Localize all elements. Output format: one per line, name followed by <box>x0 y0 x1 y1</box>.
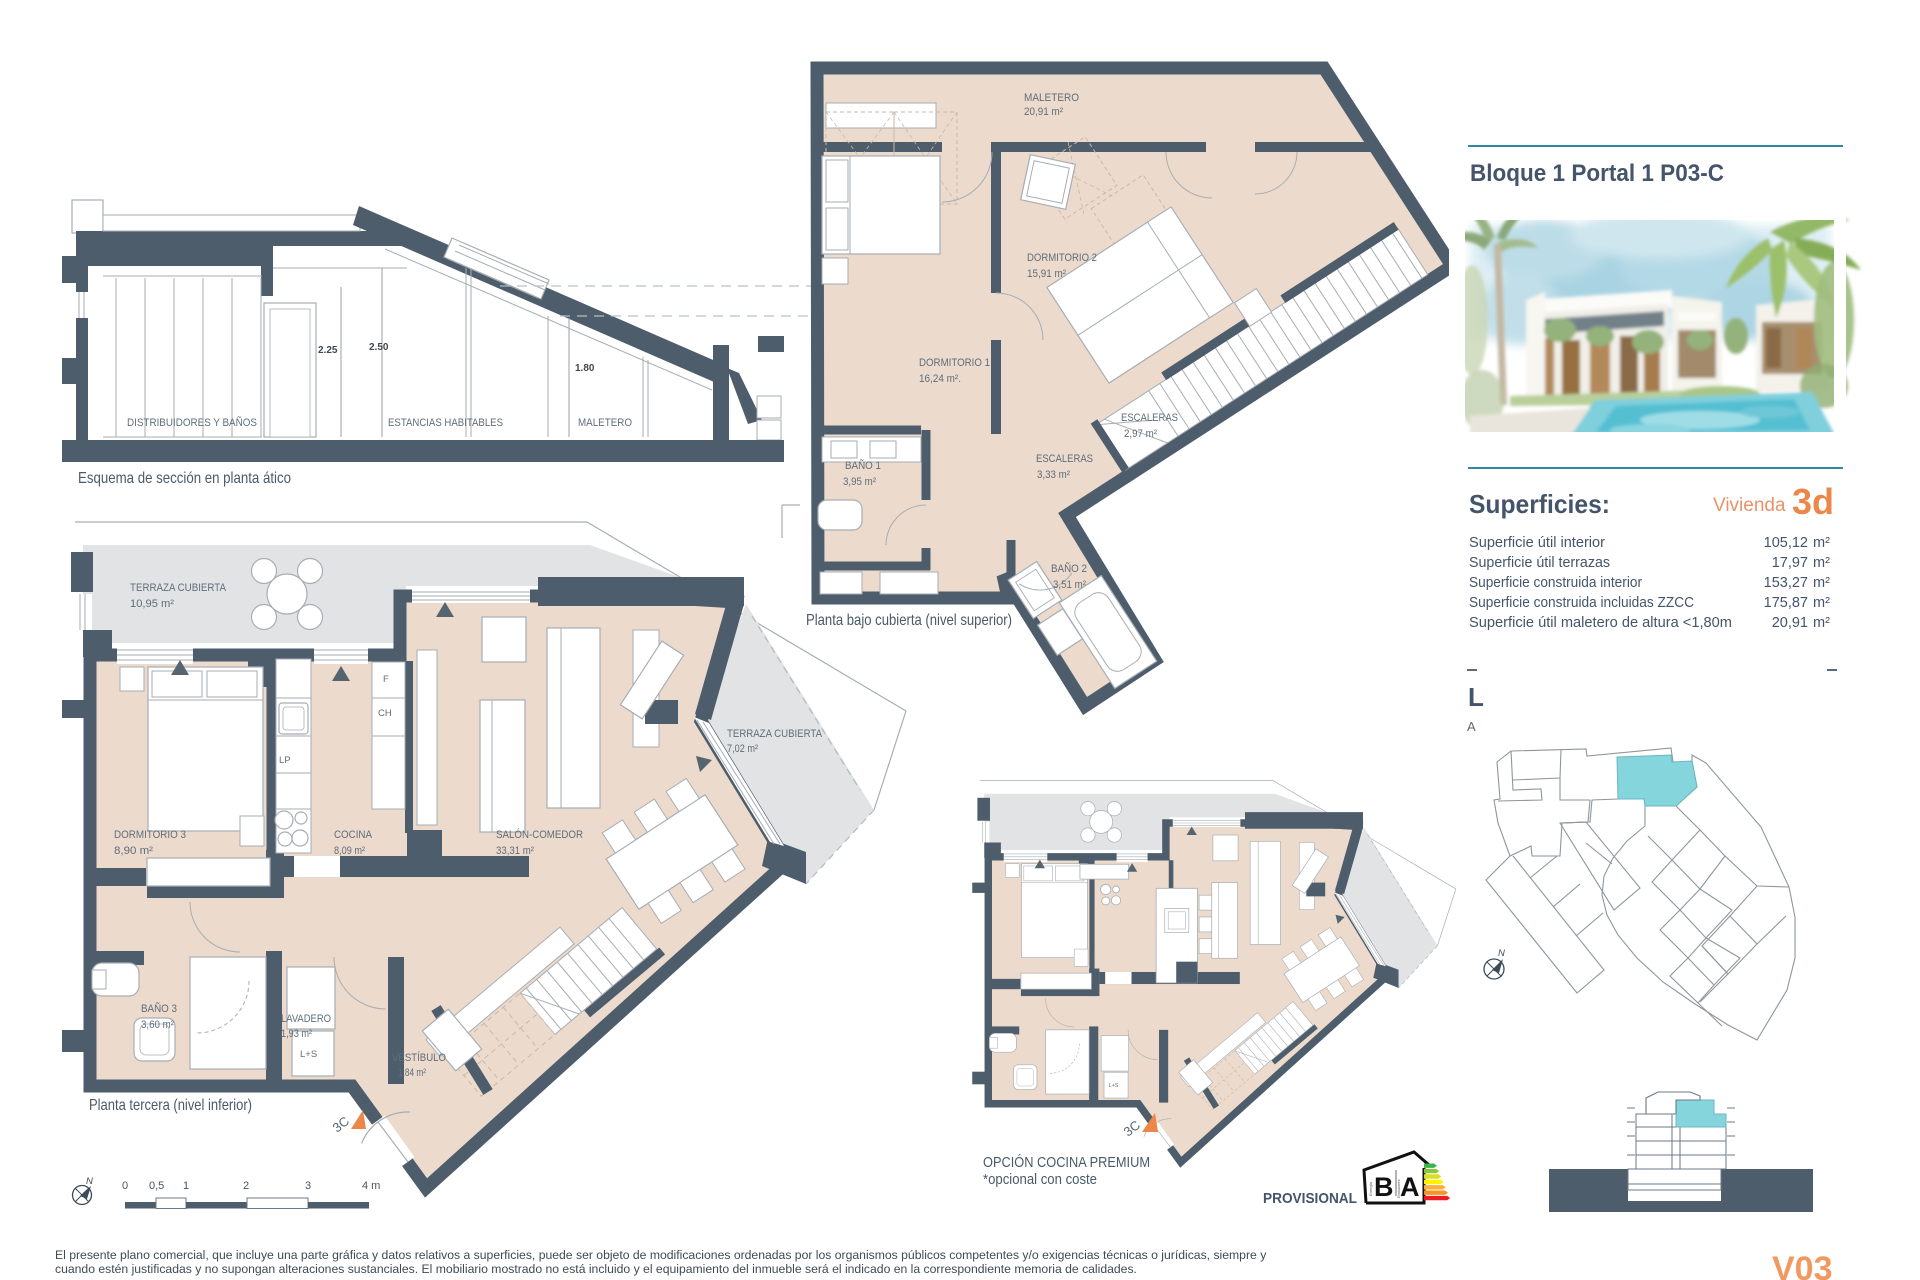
svg-text:COCINA: COCINA <box>334 829 373 841</box>
svg-text:0: 0 <box>122 1180 128 1192</box>
svg-text:1: 1 <box>183 1180 189 1192</box>
svg-text:m²: m² <box>1813 535 1830 551</box>
svg-text:m²: m² <box>1813 595 1830 611</box>
svg-text:8,09 m²: 8,09 m² <box>334 845 365 857</box>
svg-text:m²: m² <box>1813 575 1830 591</box>
svg-text:105,12: 105,12 <box>1764 535 1808 551</box>
svg-text:m²: m² <box>1813 555 1830 571</box>
svg-text:SALÓN-COMEDOR: SALÓN-COMEDOR <box>496 828 583 841</box>
svg-text:2.25: 2.25 <box>318 345 338 356</box>
svg-text:N: N <box>86 1176 93 1187</box>
svg-text:TERRAZA CUBIERTA: TERRAZA CUBIERTA <box>130 582 227 594</box>
svg-text:3d: 3d <box>1792 481 1834 522</box>
svg-text:Superficie construida interior: Superficie construida interior <box>1469 575 1642 591</box>
svg-text:Planta tercera (nivel inferior: Planta tercera (nivel inferior) <box>89 1097 252 1114</box>
svg-text:3: 3 <box>305 1180 311 1192</box>
svg-text:Superficie construida incluida: Superficie construida incluidas ZZCC <box>1469 595 1694 611</box>
svg-text:10,95 m²: 10,95 m² <box>130 598 174 610</box>
svg-text:TERRAZA CUBIERTA: TERRAZA CUBIERTA <box>727 728 823 740</box>
svg-text:20,91 m²: 20,91 m² <box>1024 106 1063 118</box>
svg-text:V03: V03 <box>1772 1250 1833 1280</box>
svg-text:L: L <box>1468 682 1484 712</box>
svg-text:Esquema de sección en planta á: Esquema de sección en planta ático <box>78 470 291 487</box>
svg-text:1,84 m²: 1,84 m² <box>398 1067 426 1079</box>
svg-text:Planta bajo cubierta (nivel su: Planta bajo cubierta (nivel superior) <box>806 612 1012 629</box>
svg-text:El presente plano comercial, q: El presente plano comercial, que incluye… <box>55 1248 1267 1262</box>
svg-text:DORMITORIO 2: DORMITORIO 2 <box>1027 252 1097 264</box>
svg-text:33,31 m²: 33,31 m² <box>496 845 534 857</box>
svg-text:DISTRIBUIDORES Y BAÑOS: DISTRIBUIDORES Y BAÑOS <box>127 416 257 429</box>
svg-text:16,24 m².: 16,24 m². <box>919 373 961 385</box>
svg-text:VESTÍBULO: VESTÍBULO <box>392 1051 446 1064</box>
svg-text:DORMITORIO 3: DORMITORIO 3 <box>114 829 186 841</box>
svg-text:Superficie útil interior: Superficie útil interior <box>1469 535 1605 551</box>
svg-text:A: A <box>1467 719 1476 734</box>
svg-text:20,91: 20,91 <box>1772 615 1808 631</box>
svg-text:17,97: 17,97 <box>1772 555 1808 571</box>
svg-text:Superficie útil maletero de al: Superficie útil maletero de altura <1,80… <box>1469 615 1732 631</box>
svg-text:2,97 m²: 2,97 m² <box>1124 428 1157 440</box>
svg-text:PROVISIONAL: PROVISIONAL <box>1263 1190 1357 1207</box>
svg-text:8,90 m²: 8,90 m² <box>114 845 153 857</box>
svg-text:Vivienda: Vivienda <box>1713 495 1786 516</box>
svg-text:3,51 m²: 3,51 m² <box>1053 579 1086 591</box>
svg-text:BAÑO 1: BAÑO 1 <box>845 459 881 472</box>
svg-text:DORMITORIO 1: DORMITORIO 1 <box>919 357 990 369</box>
svg-text:Superficies:: Superficies: <box>1469 489 1610 519</box>
svg-text:BAÑO 2: BAÑO 2 <box>1051 562 1087 575</box>
svg-text:1.80: 1.80 <box>575 363 595 374</box>
svg-text:3,60 m²: 3,60 m² <box>141 1019 174 1031</box>
svg-text:2.50: 2.50 <box>369 342 389 353</box>
svg-text:Emisiones: Emisiones <box>1396 1180 1401 1198</box>
svg-text:ESCALERAS: ESCALERAS <box>1121 412 1178 424</box>
svg-text:MALETERO: MALETERO <box>578 417 632 429</box>
svg-text:LAVADERO: LAVADERO <box>281 1013 331 1025</box>
svg-text:3,95 m²: 3,95 m² <box>843 476 876 488</box>
svg-text:Superficie útil terrazas: Superficie útil terrazas <box>1469 555 1610 571</box>
svg-text:F: F <box>383 674 389 685</box>
svg-text:15,91 m²: 15,91 m² <box>1027 268 1066 280</box>
svg-text:B: B <box>1374 1172 1394 1202</box>
svg-text:m²: m² <box>1813 615 1830 631</box>
svg-text:4 m: 4 m <box>362 1180 380 1192</box>
svg-text:LP: LP <box>279 755 291 766</box>
svg-text:OPCIÓN COCINA PREMIUM: OPCIÓN COCINA PREMIUM <box>983 1154 1150 1171</box>
svg-text:N: N <box>1498 948 1505 959</box>
svg-text:BAÑO 3: BAÑO 3 <box>141 1002 177 1015</box>
svg-text:L+S: L+S <box>1109 1083 1119 1089</box>
svg-text:0,5: 0,5 <box>149 1180 164 1192</box>
svg-text:153,27: 153,27 <box>1764 575 1808 591</box>
svg-text:7,02 m²: 7,02 m² <box>727 743 758 755</box>
svg-text:ESTANCIAS HABITABLES: ESTANCIAS HABITABLES <box>388 417 503 429</box>
svg-text:1,93 m²: 1,93 m² <box>281 1028 312 1040</box>
svg-text:3,33 m²: 3,33 m² <box>1037 469 1070 481</box>
svg-text:CH: CH <box>378 708 392 719</box>
svg-text:ESCALERAS: ESCALERAS <box>1036 453 1093 465</box>
svg-text:MALETERO: MALETERO <box>1024 92 1079 104</box>
svg-text:L+S: L+S <box>300 1049 317 1060</box>
svg-text:*opcional con coste: *opcional con coste <box>983 1171 1097 1188</box>
svg-text:A: A <box>1400 1172 1420 1202</box>
svg-text:cuando estén justificadas y no: cuando estén justificadas y no supongan … <box>55 1262 1137 1276</box>
svg-text:175,87: 175,87 <box>1764 595 1808 611</box>
svg-text:Energía: Energía <box>1368 1181 1373 1196</box>
svg-text:Bloque 1 Portal 1 P03-C: Bloque 1 Portal 1 P03-C <box>1470 160 1724 187</box>
svg-text:2: 2 <box>243 1180 249 1192</box>
